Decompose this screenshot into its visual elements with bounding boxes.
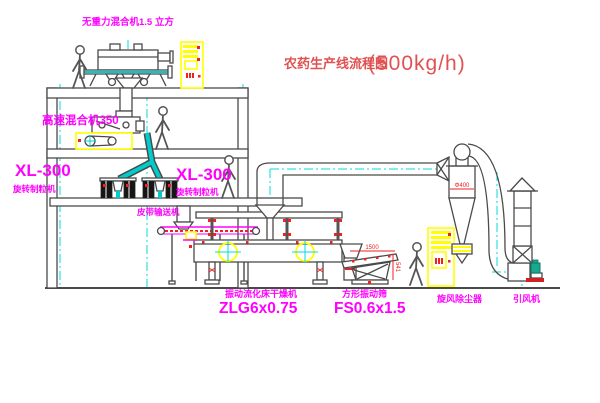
induced-draft-fan xyxy=(508,246,544,282)
dim-sieve-height: 541 xyxy=(394,262,400,273)
label-granulator-right-model: XL-300 xyxy=(176,165,232,184)
label-granulator-left-model: XL-300 xyxy=(15,161,71,180)
label-dryer-name: 振动流化床干燥机 xyxy=(225,288,297,299)
label-cyclone-name: 旋风除尘器 xyxy=(436,293,483,304)
granulator-left xyxy=(100,178,136,198)
label-sieve-name: 方形振动筛 xyxy=(342,288,387,299)
label-dryer-model: ZLG6x0.75 xyxy=(219,300,298,317)
dim-sieve-length: 1500 xyxy=(365,245,379,251)
label-granulator-left-name: 旋转制粒机 xyxy=(12,184,56,194)
control-cabinet-top xyxy=(181,42,203,88)
granulator-right xyxy=(142,178,178,198)
label-fan-name: 引风机 xyxy=(513,293,540,304)
drawing-canvas: 无重力混合机1.5 立方 农药生产线流程图 (500kg/h) 高速混合机350… xyxy=(0,0,600,403)
control-cabinet-right xyxy=(428,228,454,286)
label-gravity-mixer: 无重力混合机1.5 立方 xyxy=(81,16,174,28)
label-granulator-right-name: 旋转制粒机 xyxy=(175,187,219,197)
process-flow-diagram: 无重力混合机1.5 立方 农药生产线流程图 (500kg/h) 高速混合机350… xyxy=(0,0,600,403)
fluid-bed-dryer xyxy=(183,205,356,284)
worker-figure xyxy=(156,107,169,149)
worker-figure xyxy=(410,243,423,285)
exhaust-stack xyxy=(507,178,538,246)
label-high-speed-mixer: 高速混合机350 xyxy=(42,113,119,127)
gravity-free-mixer xyxy=(80,44,173,111)
dim-cyclone-diameter: Φ400 xyxy=(455,183,470,189)
worker-figure xyxy=(73,46,86,88)
label-belt-conveyor: 皮带输送机 xyxy=(136,207,180,217)
page-title-capacity: (500kg/h) xyxy=(368,52,466,75)
label-sieve-model: FS0.6x1.5 xyxy=(334,300,406,317)
